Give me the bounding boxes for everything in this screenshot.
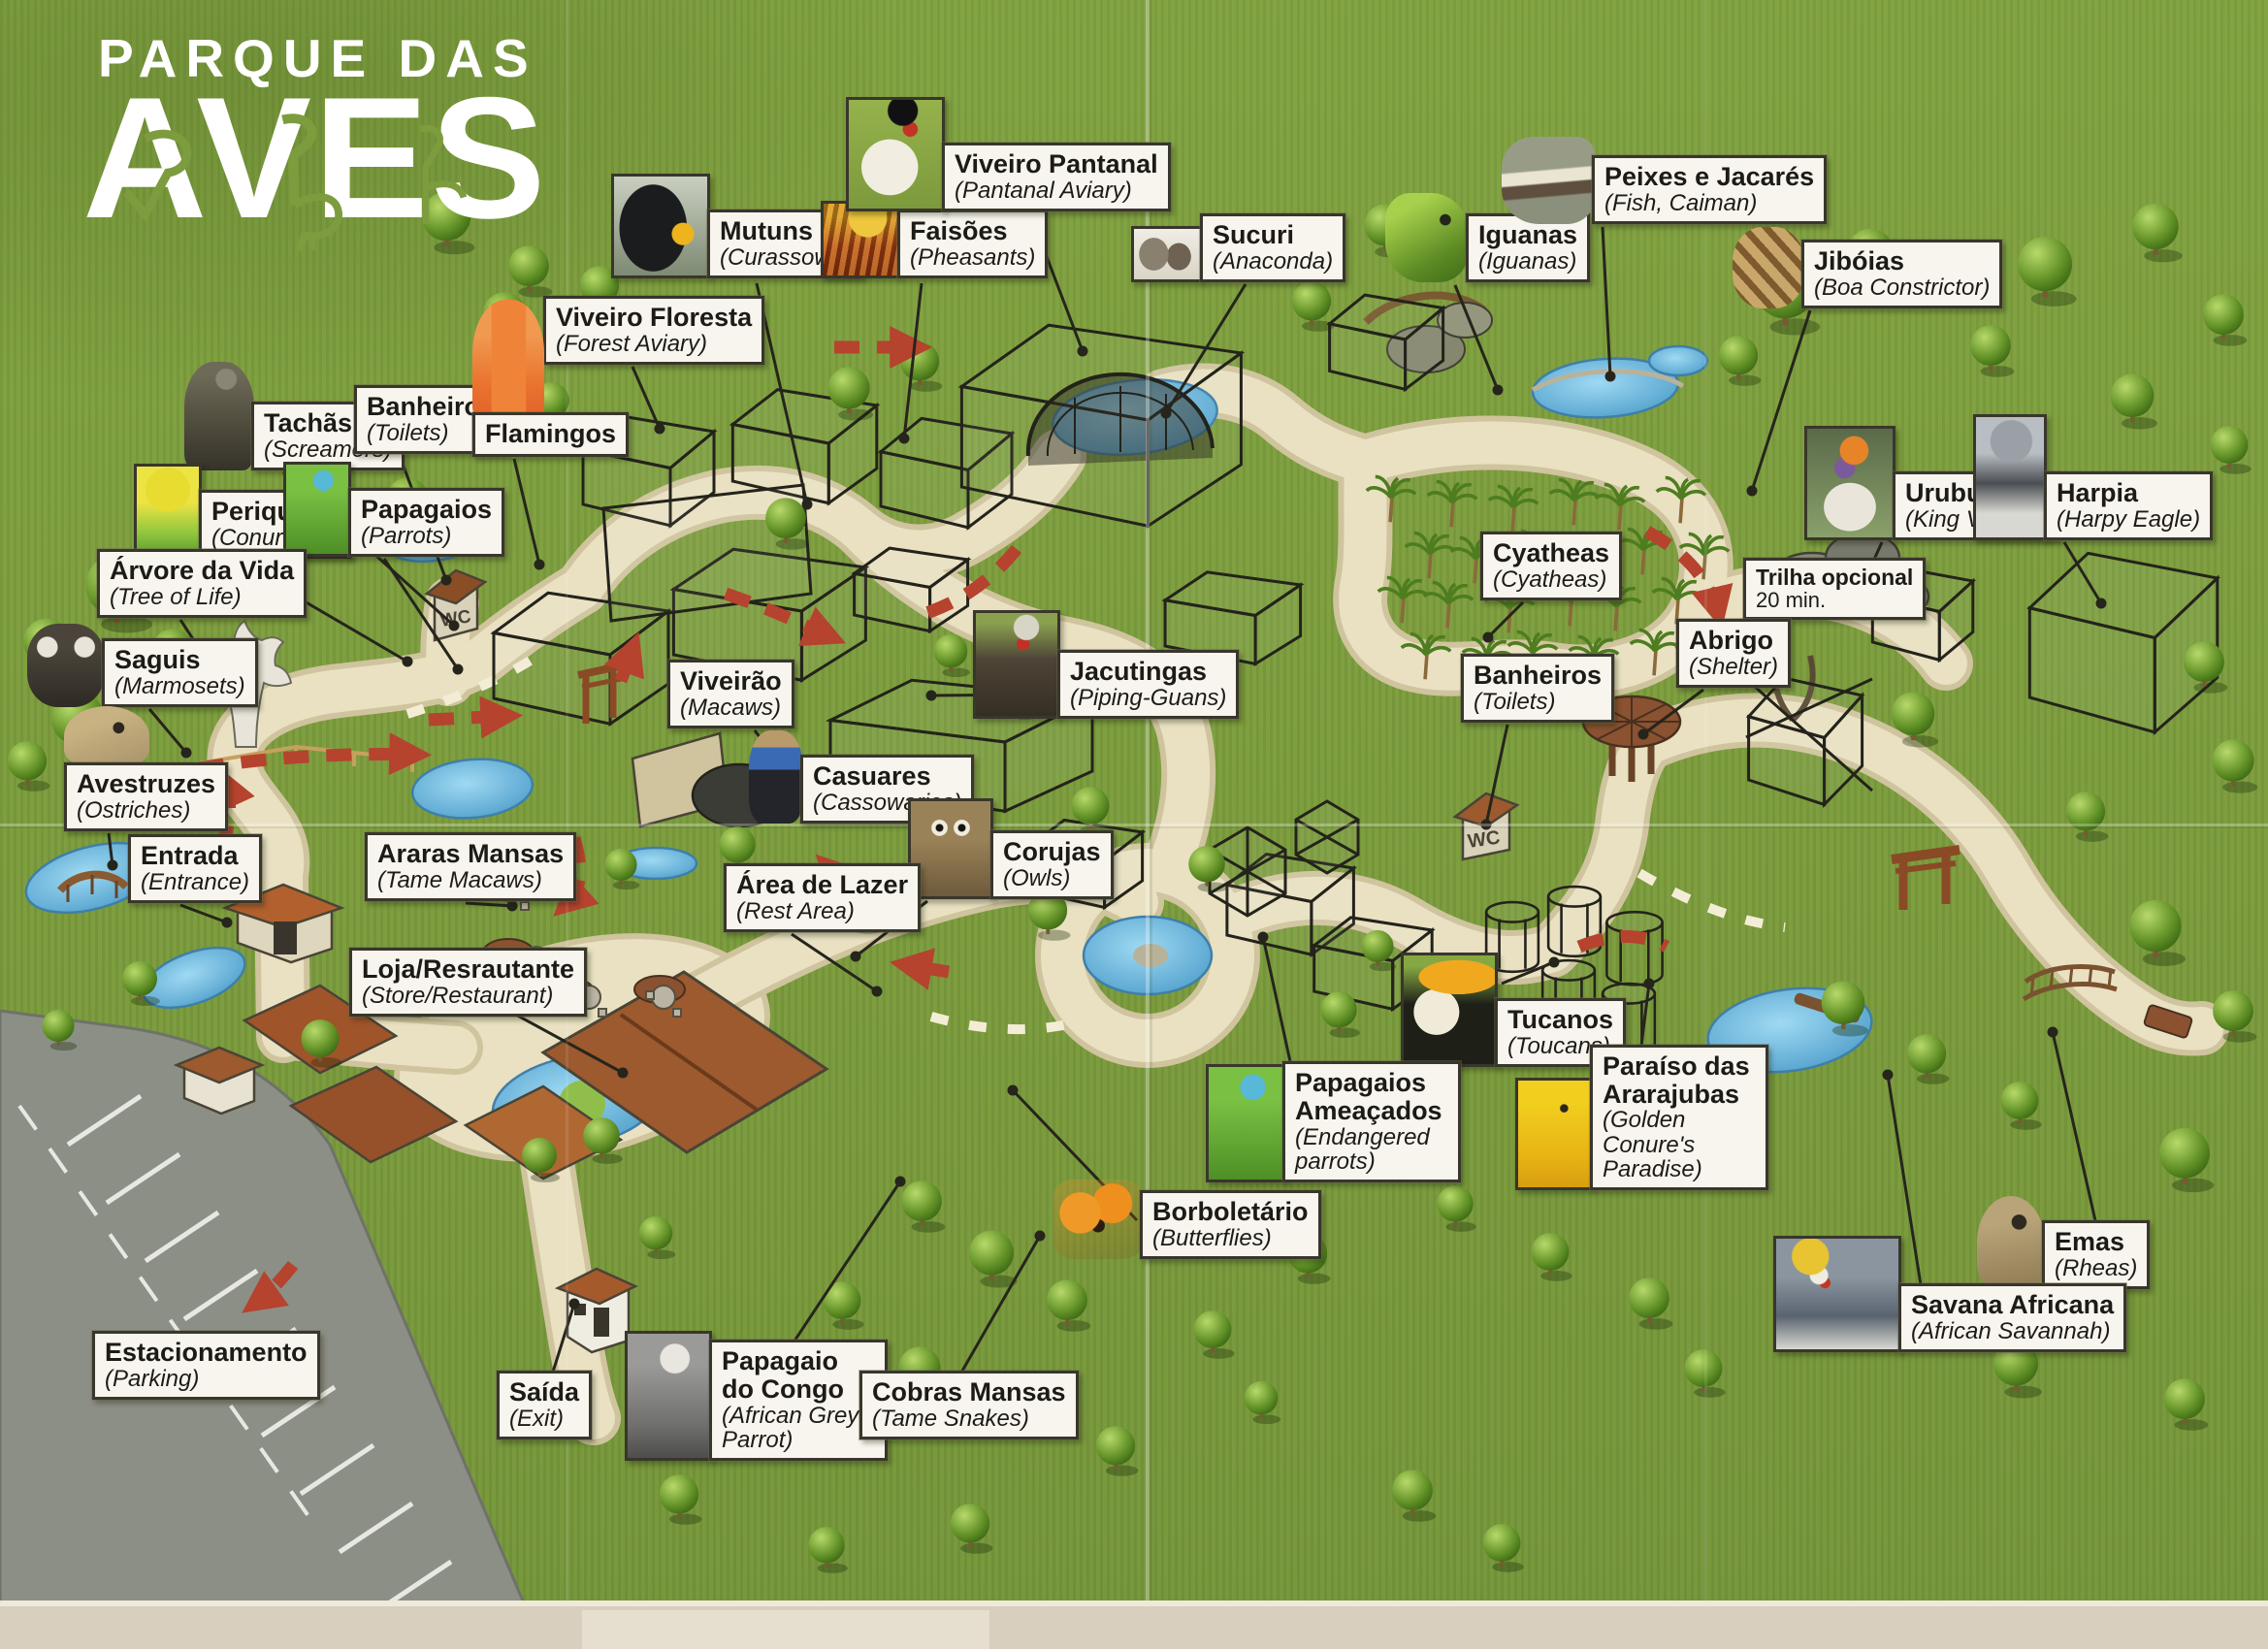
poi-label-entrada: Entrada(Entrance) <box>128 834 262 903</box>
anaconda-photo <box>1131 226 1203 282</box>
poi-label-arvore-da-vida: Árvore da Vida(Tree of Life) <box>97 549 307 618</box>
toucan-photo <box>1401 953 1498 1067</box>
poi-name: Peixes e Jacarés <box>1604 163 1814 191</box>
poi-trilha-opcional: Trilha opcional20 min. <box>1743 558 1926 620</box>
poi-name: Papagaios <box>361 496 492 524</box>
king-vulture-photo <box>1804 426 1895 540</box>
poi-label-savana-africana: Savana Africana(African Savannah) <box>1898 1283 2126 1352</box>
poi-translation: (Iguanas) <box>1478 249 1577 274</box>
poi-label-viveiro-pantanal: Viveiro Pantanal(Pantanal Aviary) <box>942 143 1171 211</box>
caiman-photo <box>1502 137 1595 224</box>
poi-translation: (Tame Macaws) <box>377 868 564 892</box>
poi-corujas: Corujas(Owls) <box>908 798 1114 899</box>
poi-name: Trilha opcional <box>1756 566 1913 589</box>
poi-name: Flamingos <box>485 420 616 448</box>
poi-name: Área de Lazer <box>736 871 908 899</box>
poi-translation: (African Savannah) <box>1911 1319 2114 1343</box>
poi-translation: (Store/Restaurant) <box>362 984 574 1008</box>
screamer-photo <box>184 362 254 470</box>
poi-label-banheiros-2: Banheiros(Toilets) <box>1461 654 1614 723</box>
poi-label-estacionamento: Estacionamento(Parking) <box>92 1331 320 1400</box>
poi-borboletario: Borboletário(Butterflies) <box>1053 1180 1321 1259</box>
poi-translation: (Tame Snakes) <box>872 1406 1066 1431</box>
poi-avestruzes: Avestruzes(Ostriches) <box>64 706 228 831</box>
owl-photo <box>908 798 993 899</box>
poi-jiboias: Jibóias(Boa Constrictor) <box>1733 227 2002 308</box>
poi-label-araras-mansas: Araras Mansas(Tame Macaws) <box>365 832 576 901</box>
poi-name: Savana Africana <box>1911 1291 2114 1319</box>
poi-peixes-jacares: Peixes e Jacarés(Fish, Caiman) <box>1502 137 1827 224</box>
amazon-photo <box>283 462 351 557</box>
crowned-crane-photo <box>1773 1236 1901 1352</box>
poi-label-trilha-opcional: Trilha opcional20 min. <box>1743 558 1926 620</box>
poi-name: Saída <box>509 1378 579 1406</box>
poi-translation: (Endangered parrots) <box>1295 1125 1448 1174</box>
poi-translation: (Shelter) <box>1689 655 1778 679</box>
golden-conure-photo <box>1515 1078 1593 1190</box>
poi-banheiros-2: Banheiros(Toilets) <box>1461 654 1614 723</box>
poi-name: Faisões <box>910 217 1035 245</box>
poi-label-area-de-lazer: Área de Lazer(Rest Area) <box>724 863 921 932</box>
poi-label-loja: Loja/Resrautante(Store/Restaurant) <box>349 948 587 1017</box>
poi-translation: (Owls) <box>1003 866 1101 890</box>
poi-label-abrigo: Abrigo(Shelter) <box>1676 619 1791 688</box>
poi-translation: (Parking) <box>105 1367 308 1391</box>
poi-loja: Loja/Resrautante(Store/Restaurant) <box>349 948 587 1017</box>
poi-label-jacutingas: Jacutingas(Piping-Guans) <box>1057 650 1239 719</box>
poi-translation: (Entrance) <box>141 870 249 894</box>
endangered-parrot-photo <box>1206 1064 1285 1182</box>
poi-sucuri: Sucuri(Anaconda) <box>1131 213 1345 282</box>
iguana-photo <box>1385 193 1469 282</box>
poi-name: Viveiro Pantanal <box>955 150 1158 178</box>
poi-label-paraiso-ararajubas: Paraíso das Ararajubas(Golden Conure's P… <box>1590 1045 1768 1190</box>
poi-jacutingas: Jacutingas(Piping-Guans) <box>973 610 1239 719</box>
poi-papagaios-ameacados: Papagaios Ameaçados(Endangered parrots) <box>1206 1061 1461 1182</box>
poi-translation: (African Grey Parrot) <box>722 1404 875 1452</box>
poi-name: Papagaios Ameaçados <box>1295 1069 1448 1124</box>
poi-translation: (Boa Constrictor) <box>1814 275 1990 300</box>
poi-faisoes: Faisões(Pheasants) <box>821 201 1048 278</box>
poi-label-saida: Saída(Exit) <box>497 1371 592 1439</box>
poi-arvore-da-vida: Árvore da Vida(Tree of Life) <box>97 549 307 618</box>
poi-viveiro-pantanal: Viveiro Pantanal(Pantanal Aviary) <box>846 97 1171 211</box>
poi-label-sucuri: Sucuri(Anaconda) <box>1200 213 1345 282</box>
poi-name: Banheiros <box>1474 662 1602 690</box>
park-map: WC WC <box>0 0 2268 1649</box>
curassow-photo <box>611 174 710 278</box>
poi-name: Sucuri <box>1213 221 1333 249</box>
cassowary-photo <box>749 730 803 824</box>
poi-name: Abrigo <box>1689 627 1778 655</box>
poi-translation: (Butterflies) <box>1152 1226 1309 1250</box>
poi-viveirao: Viveirão(Macaws) <box>667 660 794 728</box>
poi-papagaio-congo: Papagaio do Congo(African Grey Parrot) <box>625 1331 888 1461</box>
poi-translation: (Piping-Guans) <box>1070 686 1226 710</box>
poi-name: Harpia <box>2057 479 2200 507</box>
poi-label-cyatheas: Cyatheas(Cyatheas) <box>1480 532 1622 600</box>
flamingo-photo <box>472 300 544 416</box>
poi-label-papagaios-ameacados: Papagaios Ameaçados(Endangered parrots) <box>1282 1061 1461 1182</box>
poi-paraiso-ararajubas: Paraíso das Ararajubas(Golden Conure's P… <box>1515 1045 1768 1190</box>
poi-name: Cyatheas <box>1493 539 1609 567</box>
poi-translation: (Harpy Eagle) <box>2057 507 2200 532</box>
poi-translation: (Marmosets) <box>114 674 245 698</box>
poi-name: Cobras Mansas <box>872 1378 1066 1406</box>
boa-photo <box>1733 227 1804 308</box>
poi-translation: (Toilets) <box>1474 690 1602 714</box>
poi-name: Corujas <box>1003 838 1101 866</box>
poi-translation: (Macaws) <box>680 695 782 720</box>
poi-name: Entrada <box>141 842 249 870</box>
poi-savana-africana: Savana Africana(African Savannah) <box>1773 1236 2126 1352</box>
poi-estacionamento: Estacionamento(Parking) <box>92 1331 320 1400</box>
poi-label-corujas: Corujas(Owls) <box>990 830 1114 899</box>
poi-name: Viveirão <box>680 667 782 695</box>
poi-translation: (Fish, Caiman) <box>1604 191 1814 215</box>
ostrich-photo <box>64 706 149 766</box>
marmoset-photo <box>27 624 105 707</box>
budgie-photo <box>134 464 202 559</box>
butterfly-photo <box>1053 1180 1143 1259</box>
grey-parrot-photo <box>625 1331 712 1461</box>
scan-edge <box>0 1600 2268 1649</box>
poi-translation: (Pantanal Aviary) <box>955 178 1158 203</box>
park-logo: PARQUE DAS AVES <box>82 27 548 227</box>
piping-guan-photo <box>973 610 1060 719</box>
poi-name: Paraíso das Ararajubas <box>1603 1052 1756 1108</box>
poi-abrigo: Abrigo(Shelter) <box>1676 619 1791 688</box>
poi-flamingos: Flamingos <box>472 300 629 457</box>
poi-translation: (Golden Conure's Paradise) <box>1603 1108 1756 1181</box>
wc-sign-2: WC <box>1467 827 1502 853</box>
poi-entrada: Entrada(Entrance) <box>128 834 262 903</box>
poi-name: Avestruzes <box>77 770 215 798</box>
poi-label-faisoes: Faisões(Pheasants) <box>897 210 1048 278</box>
logo-title-line2: AVES <box>82 89 548 227</box>
poi-translation: (Exit) <box>509 1406 579 1431</box>
poi-papagaios: Papagaios(Parrots) <box>283 462 504 557</box>
poi-name: Casuares <box>813 762 961 791</box>
poi-translation: 20 min. <box>1756 589 1913 611</box>
poi-label-borboletario: Borboletário(Butterflies) <box>1140 1190 1321 1259</box>
poi-cyatheas: Cyatheas(Cyatheas) <box>1480 532 1622 600</box>
poi-name: Borboletário <box>1152 1198 1309 1226</box>
poi-translation: (Cyatheas) <box>1493 567 1609 592</box>
poi-label-jiboias: Jibóias(Boa Constrictor) <box>1801 240 2002 308</box>
poi-label-avestruzes: Avestruzes(Ostriches) <box>64 762 228 831</box>
poi-translation: (Ostriches) <box>77 798 215 823</box>
poi-label-papagaios: Papagaios(Parrots) <box>348 488 504 557</box>
poi-name: Jibóias <box>1814 247 1990 275</box>
harpy-photo <box>1973 414 2047 540</box>
pheasant-photo <box>821 201 900 278</box>
poi-cobras-mansas: Cobras Mansas(Tame Snakes) <box>859 1371 1079 1439</box>
poi-label-saguis: Saguis(Marmosets) <box>102 638 258 707</box>
poi-label-peixes-jacares: Peixes e Jacarés(Fish, Caiman) <box>1592 155 1827 224</box>
poi-translation: (Tree of Life) <box>110 585 294 609</box>
poi-translation: (Rest Area) <box>736 899 908 923</box>
poi-name: Jacutingas <box>1070 658 1226 686</box>
poi-name: Araras Mansas <box>377 840 564 868</box>
poi-label-harpia: Harpia(Harpy Eagle) <box>2044 471 2213 540</box>
jabiru-photo <box>846 97 945 211</box>
poi-saida: Saída(Exit) <box>497 1371 592 1439</box>
poi-name: Loja/Resrautante <box>362 955 574 984</box>
poi-name: Iguanas <box>1478 221 1577 249</box>
poi-translation: (Parrots) <box>361 524 492 548</box>
poi-label-flamingos: Flamingos <box>472 412 629 457</box>
poi-saguis: Saguis(Marmosets) <box>27 624 258 707</box>
poi-translation: (Anaconda) <box>1213 249 1333 274</box>
poi-translation: (Pheasants) <box>910 245 1035 270</box>
poi-area-de-lazer: Área de Lazer(Rest Area) <box>724 863 921 932</box>
poi-name: Árvore da Vida <box>110 557 294 585</box>
poi-name: Estacionamento <box>105 1339 308 1367</box>
poi-araras-mansas: Araras Mansas(Tame Macaws) <box>365 832 576 901</box>
poi-name: Papagaio do Congo <box>722 1347 875 1403</box>
poi-harpia: Harpia(Harpy Eagle) <box>1973 414 2213 540</box>
poi-label-cobras-mansas: Cobras Mansas(Tame Snakes) <box>859 1371 1079 1439</box>
poi-name: Tucanos <box>1507 1006 1613 1034</box>
poi-name: Saguis <box>114 646 245 674</box>
poi-label-viveirao: Viveirão(Macaws) <box>667 660 794 728</box>
